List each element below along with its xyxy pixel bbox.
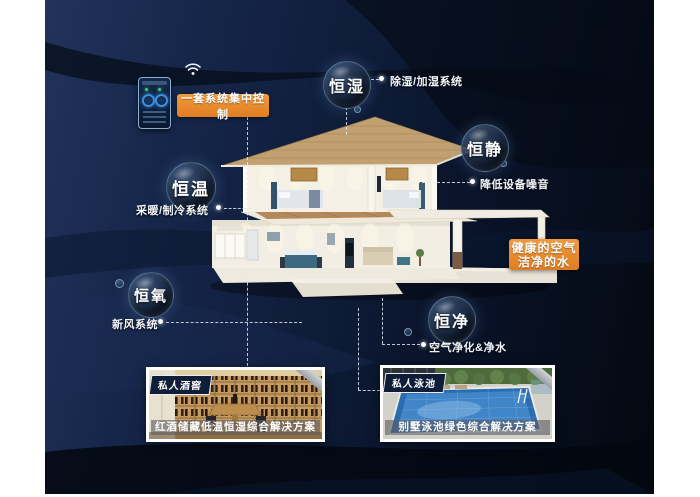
wine-cellar-photo: 私人酒窖 红酒储藏低温恒湿综合解决方案 xyxy=(149,370,322,439)
panel-row xyxy=(143,116,166,118)
bubble-constant-quiet: 恒静 xyxy=(461,124,509,172)
bubble-constant-oxygen: 恒氧 xyxy=(128,272,174,318)
pool-photo: 私人泳池 别墅泳池绿色综合解决方案 xyxy=(383,368,552,439)
panel-row xyxy=(143,111,166,113)
bubble-constant-temperature-text: 恒温 xyxy=(172,175,210,200)
central-control-label: 一套系统集中控制 xyxy=(177,94,269,117)
note-humidity-system: 除湿/加湿系统 xyxy=(390,73,463,89)
panel-dial xyxy=(155,94,168,107)
bubble-constant-clean: 恒净 xyxy=(428,296,476,344)
poster: 一套系统集中控制 健康的空气 洁净的水 恒湿 恒静 恒温 恒氧 恒净 除湿/加湿… xyxy=(0,0,700,497)
panel-led xyxy=(158,88,161,91)
healthy-air-line2: 洁净的水 xyxy=(518,255,570,269)
dot-oxygen xyxy=(158,319,163,324)
connector-pool-vertical xyxy=(358,308,359,390)
house-roof xyxy=(221,117,473,166)
panel-dial xyxy=(142,94,155,107)
wall-frame xyxy=(327,233,335,245)
healthy-air-label: 健康的空气 洁净的水 xyxy=(509,239,579,270)
pool-badge: 私人泳池 xyxy=(383,373,446,393)
connector-control-to-cellar xyxy=(247,117,248,366)
control-panel-device xyxy=(138,77,171,129)
bubble-constant-humidity: 恒湿 xyxy=(323,61,371,109)
dot-quiet xyxy=(470,179,475,184)
card-private-pool: 私人泳池 别墅泳池绿色综合解决方案 xyxy=(380,365,555,442)
upper-divider-wall xyxy=(368,160,375,212)
connector-highlight-vertical xyxy=(542,269,543,282)
pool-caption: 别墅泳池绿色综合解决方案 xyxy=(385,420,550,435)
connector-clean-vertical xyxy=(382,298,383,344)
note-fresh-air: 新风系统 xyxy=(112,316,158,332)
dining-island xyxy=(280,250,322,268)
bubble-constant-humidity-text: 恒湿 xyxy=(329,73,365,97)
house-upper-floor xyxy=(243,160,437,212)
decor-bubble xyxy=(115,279,124,288)
note-heating-cooling: 采暖/制冷系统 xyxy=(136,202,209,218)
connector-clean-horizontal xyxy=(382,344,420,345)
bubble-constant-oxygen-text: 恒氧 xyxy=(134,285,168,306)
upper-right-wall xyxy=(432,160,437,212)
dot-humidity xyxy=(379,76,384,81)
house-cutaway-illustration xyxy=(205,106,565,306)
dot-clean xyxy=(421,342,426,347)
wall-frame xyxy=(267,232,280,241)
connector-quiet-note xyxy=(412,182,470,183)
healthy-air-line1: 健康的空气 xyxy=(511,241,576,255)
decor-bubble xyxy=(404,328,412,336)
connector-temperature-note xyxy=(224,208,250,209)
note-purification: 空气净化&净水 xyxy=(429,339,506,355)
panel-led xyxy=(145,88,148,91)
dot-temperature xyxy=(216,205,221,210)
connector-highlight-horizontal xyxy=(472,282,542,283)
card-wine-cellar: 私人酒窖 红酒储藏低温恒湿综合解决方案 xyxy=(146,367,325,442)
panel-header xyxy=(142,81,167,85)
bubble-constant-quiet-text: 恒静 xyxy=(467,136,503,160)
note-noise-reduction: 降低设备噪音 xyxy=(480,176,549,192)
wine-cellar-badge: 私人酒窖 xyxy=(149,375,212,395)
panel-row xyxy=(143,121,166,123)
wifi-icon xyxy=(184,61,202,76)
connector-pool-horizontal xyxy=(358,390,380,391)
connector-oxygen-note xyxy=(166,322,302,323)
wine-cellar-caption: 红酒储藏低温恒湿综合解决方案 xyxy=(151,420,320,435)
bubble-constant-clean-text: 恒净 xyxy=(434,308,470,332)
central-control-text: 一套系统集中控制 xyxy=(177,90,269,122)
connector-humidity-to-roof xyxy=(346,107,347,135)
